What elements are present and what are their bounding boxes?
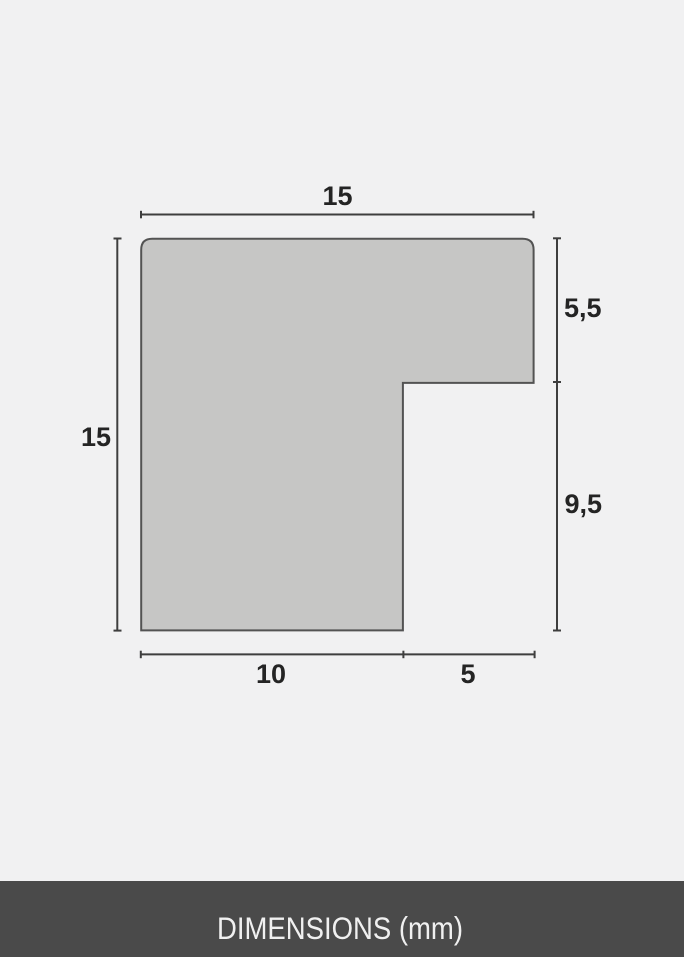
- svg-text:15: 15: [81, 422, 111, 452]
- svg-text:5,5: 5,5: [564, 293, 602, 323]
- svg-text:9,5: 9,5: [565, 489, 603, 519]
- svg-text:DIMENSIONS (mm): DIMENSIONS (mm): [217, 910, 463, 946]
- svg-text:5: 5: [460, 659, 475, 689]
- svg-text:15: 15: [322, 181, 352, 211]
- svg-text:10: 10: [256, 659, 286, 689]
